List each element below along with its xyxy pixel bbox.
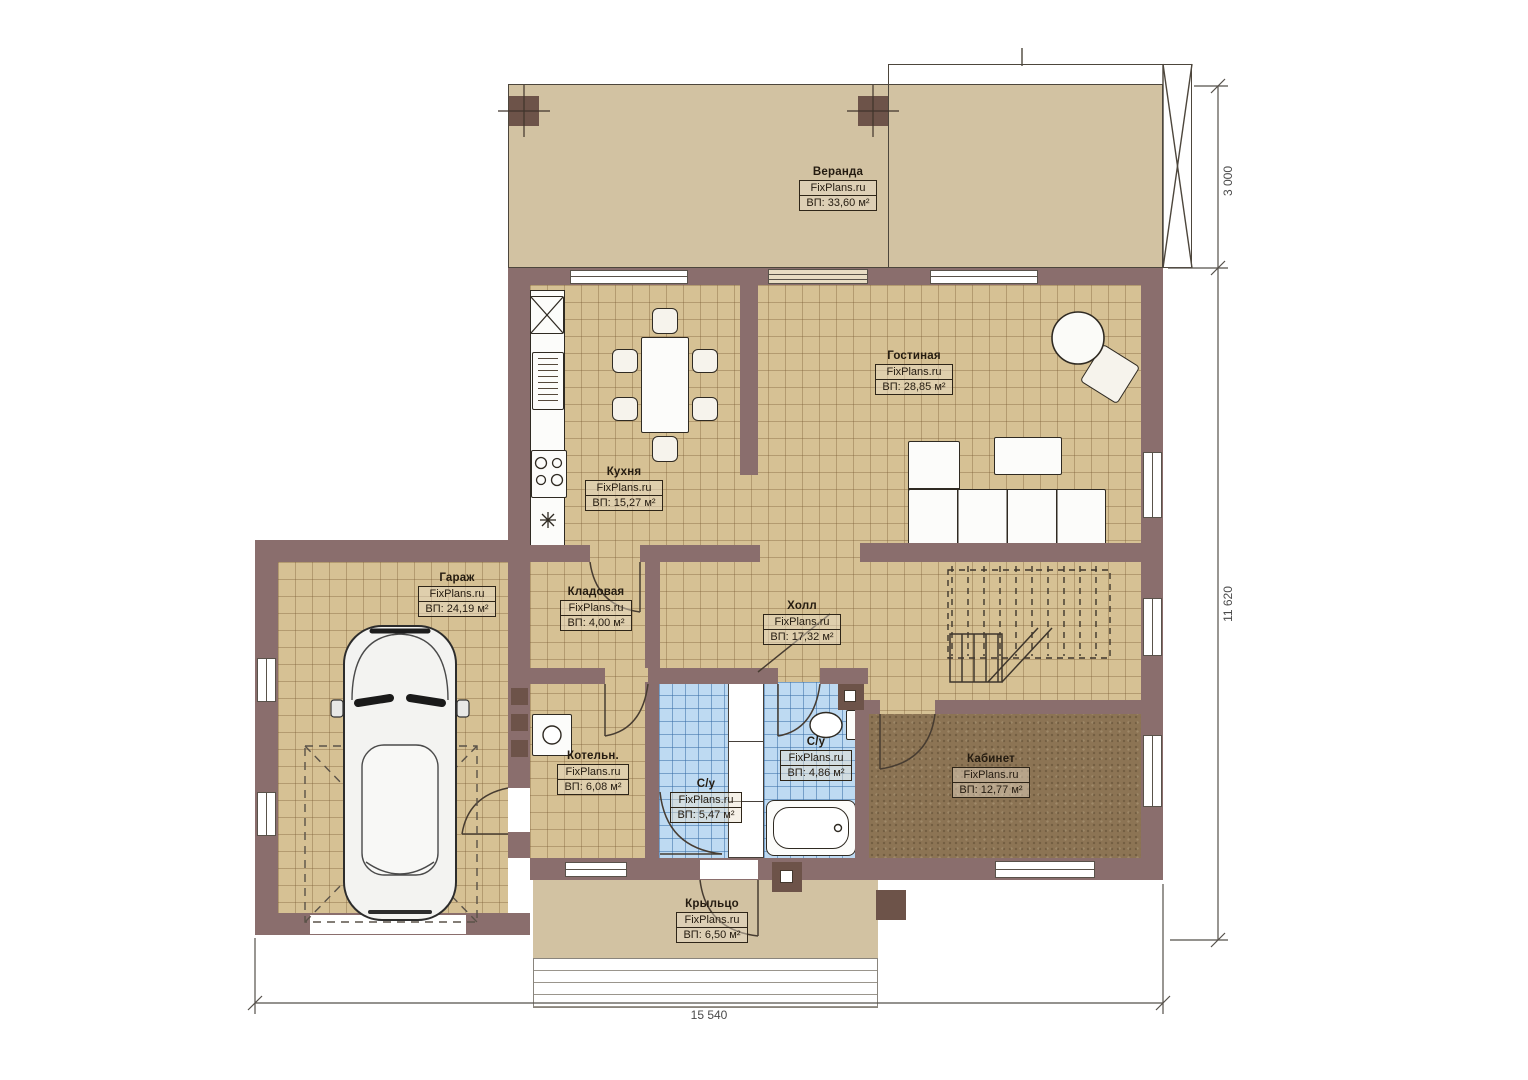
bathroom1-floor (659, 682, 728, 858)
partition-wall (648, 668, 778, 684)
room-label-hall: Холл FixPlans.ru ВП: 17,32 м² (755, 600, 849, 645)
room-label-office: Кабинет FixPlans.ru ВП: 12,77 м² (945, 753, 1037, 798)
vent-shaft (780, 870, 793, 883)
window (570, 270, 688, 284)
stove (531, 450, 567, 498)
partition-wall (820, 668, 868, 684)
window (930, 270, 1038, 284)
dining-chair (692, 397, 718, 421)
dining-chair (692, 349, 718, 373)
room-label-porch: Крыльцо FixPlans.ru ВП: 6,50 м² (668, 898, 756, 943)
room-name: С/у (697, 778, 716, 790)
room-name: Крыльцо (685, 898, 739, 910)
partition-wall (640, 545, 760, 562)
partition-wall (935, 700, 1141, 714)
veranda-door (768, 269, 868, 284)
dining-chair (652, 308, 678, 334)
room-name: Гостиная (887, 350, 941, 362)
brand-watermark: FixPlans.ru (764, 615, 839, 630)
garage-wall (255, 540, 530, 562)
partition-wall (645, 682, 659, 858)
room-name: Котельн. (567, 750, 619, 762)
dim-house-width: 15 540 (691, 1008, 728, 1022)
room-label-boiler: Котельн. FixPlans.ru ВП: 6,08 м² (548, 750, 638, 795)
veranda-column (509, 96, 539, 126)
bathroom-cabinet-column (728, 682, 764, 858)
dim-veranda-depth: 3 000 (1221, 166, 1235, 196)
partition-wall (645, 562, 660, 668)
garage-wall (255, 540, 278, 935)
brand-watermark: FixPlans.ru (781, 751, 850, 766)
brand-watermark: FixPlans.ru (671, 793, 740, 808)
garage-door-opening (310, 915, 466, 934)
window (995, 861, 1095, 878)
brand-watermark: FixPlans.ru (876, 365, 951, 380)
veranda-column (858, 96, 888, 126)
roof-outline (888, 64, 1192, 268)
window (1143, 452, 1162, 518)
vent-shaft (844, 690, 856, 702)
room-name: Кабинет (967, 753, 1015, 765)
window (1143, 735, 1162, 807)
dining-chair (612, 349, 638, 373)
room-area: ВП: 33,60 м² (800, 196, 875, 210)
door-opening (508, 788, 530, 832)
bathtub-inner (773, 807, 849, 849)
garage-window (257, 792, 276, 836)
room-area: ВП: 6,08 м² (558, 780, 627, 794)
brand-watermark: FixPlans.ru (800, 181, 875, 196)
pilaster (511, 714, 528, 731)
room-label-bath1: С/у FixPlans.ru ВП: 5,47 м² (662, 778, 750, 823)
kitchen-tall-unit (532, 352, 564, 410)
brand-watermark: FixPlans.ru (558, 765, 627, 780)
room-name: С/у (807, 736, 826, 748)
room-label-storage: Кладовая FixPlans.ru ВП: 4,00 м² (550, 586, 642, 631)
room-area: ВП: 5,47 м² (671, 808, 740, 822)
coffee-table (994, 437, 1062, 475)
room-label-living: Гостиная FixPlans.ru ВП: 28,85 м² (868, 350, 960, 395)
room-name: Кухня (607, 466, 642, 478)
dim-house-height: 11 620 (1221, 586, 1235, 622)
room-label-bath2: С/у FixPlans.ru ВП: 4,86 м² (772, 736, 860, 781)
wall-segment (508, 268, 530, 562)
porch-steps (533, 958, 878, 1008)
room-area: ВП: 6,50 м² (677, 928, 746, 942)
partition-wall (530, 668, 605, 684)
pilaster (511, 688, 528, 705)
room-name: Кладовая (568, 586, 625, 598)
floor-plan-sheet: 3 000 11 620 15 540 Веранда FixPlans.ru … (0, 0, 1528, 1080)
room-area: ВП: 4,00 м² (561, 616, 630, 630)
garage-window (257, 658, 276, 702)
brand-watermark: FixPlans.ru (586, 481, 661, 496)
window (1143, 598, 1162, 656)
room-name: Холл (787, 600, 817, 612)
room-area: ВП: 17,32 м² (764, 630, 839, 644)
brand-watermark: FixPlans.ru (953, 768, 1028, 783)
room-area: ВП: 28,85 м² (876, 380, 951, 394)
brand-watermark: FixPlans.ru (419, 587, 494, 602)
window (565, 862, 627, 877)
partition-wall (530, 545, 590, 562)
room-area: ВП: 12,77 м² (953, 783, 1028, 797)
door-opening (700, 860, 758, 879)
kitchen-vent-shaft (530, 296, 564, 334)
brand-watermark: FixPlans.ru (677, 913, 746, 928)
dining-table (641, 337, 689, 433)
porch-column (876, 890, 906, 920)
brand-watermark: FixPlans.ru (561, 601, 630, 616)
room-name: Веранда (813, 166, 863, 178)
dining-chair (612, 397, 638, 421)
room-name: Гараж (439, 572, 474, 584)
room-area: ВП: 4,86 м² (781, 766, 850, 780)
room-area: ВП: 15,27 м² (586, 496, 661, 510)
pilaster (511, 740, 528, 757)
room-label-kitchen: Кухня FixPlans.ru ВП: 15,27 м² (578, 466, 670, 511)
room-area: ВП: 24,19 м² (419, 602, 494, 616)
sofa (908, 489, 1106, 545)
room-label-garage: Гараж FixPlans.ru ВП: 24,19 м² (412, 572, 502, 617)
room-label-veranda: Веранда FixPlans.ru ВП: 33,60 м² (790, 166, 886, 211)
partition-wall (860, 543, 1141, 562)
dining-chair (652, 436, 678, 462)
partition-wall (740, 285, 758, 475)
